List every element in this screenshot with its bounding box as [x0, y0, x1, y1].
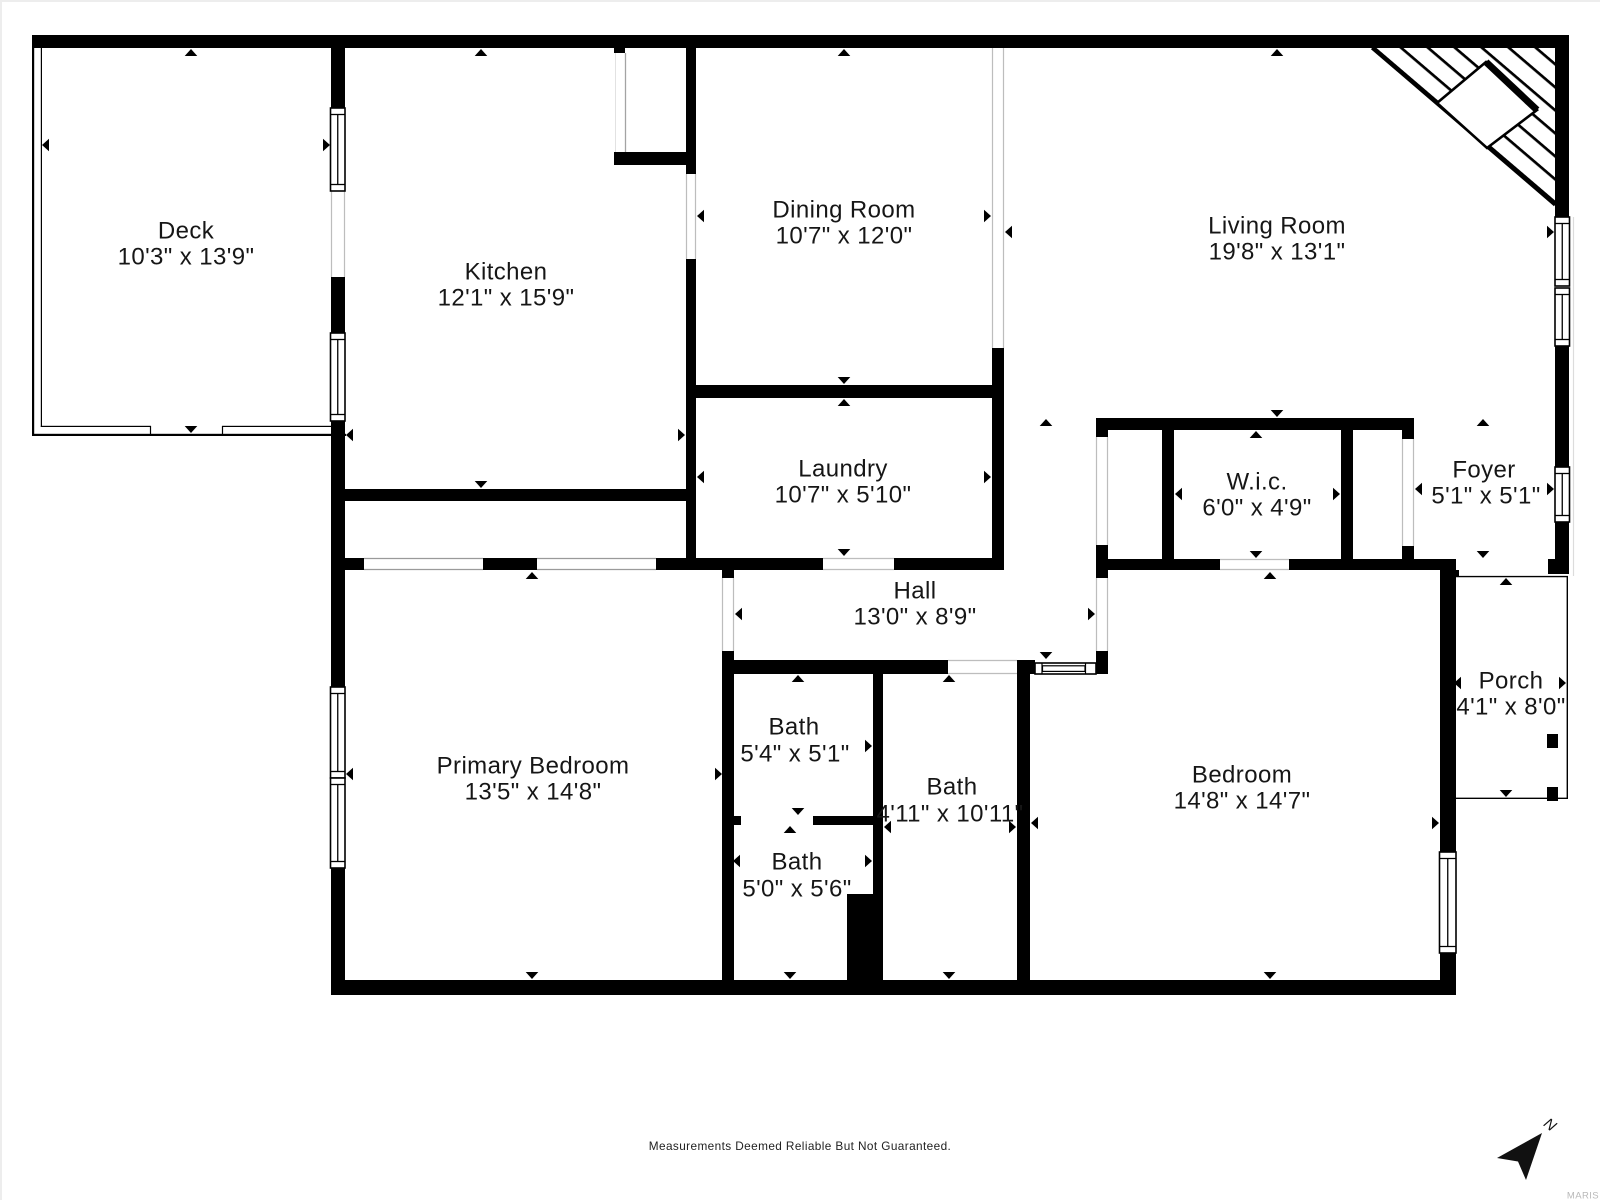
svg-text:13'0" x 8'9": 13'0" x 8'9" — [853, 604, 976, 631]
svg-text:Porch: Porch — [1479, 668, 1544, 695]
svg-text:10'3" x 13'9": 10'3" x 13'9" — [118, 244, 255, 271]
svg-text:5'1" x 5'1": 5'1" x 5'1" — [1431, 483, 1540, 510]
svg-text:14'8" x 14'7": 14'8" x 14'7" — [1174, 788, 1311, 815]
svg-text:Bath: Bath — [769, 714, 820, 741]
svg-text:4'11" x 10'11": 4'11" x 10'11" — [876, 801, 1023, 828]
svg-text:Living Room: Living Room — [1208, 213, 1346, 240]
svg-text:Dining Room: Dining Room — [772, 197, 915, 224]
svg-text:W.i.c.: W.i.c. — [1226, 469, 1287, 496]
svg-text:5'4" x 5'1": 5'4" x 5'1" — [740, 741, 849, 768]
svg-text:Primary Bedroom: Primary Bedroom — [437, 753, 630, 780]
svg-text:Foyer: Foyer — [1452, 457, 1515, 484]
svg-text:10'7" x 5'10": 10'7" x 5'10" — [775, 482, 912, 509]
svg-text:Bedroom: Bedroom — [1192, 762, 1292, 789]
svg-text:Deck: Deck — [158, 218, 215, 245]
svg-text:10'7" x 12'0": 10'7" x 12'0" — [776, 223, 913, 250]
svg-text:5'0" x 5'6": 5'0" x 5'6" — [742, 876, 851, 903]
svg-text:4'1" x 8'0": 4'1" x 8'0" — [1456, 694, 1565, 721]
svg-text:12'1" x 15'9": 12'1" x 15'9" — [438, 285, 575, 312]
svg-text:Kitchen: Kitchen — [465, 259, 548, 286]
svg-text:Bath: Bath — [772, 849, 823, 876]
svg-text:19'8" x 13'1": 19'8" x 13'1" — [1209, 239, 1346, 266]
svg-text:Measurements Deemed Reliable B: Measurements Deemed Reliable But Not Gua… — [649, 1139, 951, 1153]
svg-text:Laundry: Laundry — [798, 456, 888, 483]
svg-text:Bath: Bath — [927, 774, 978, 801]
svg-text:13'5" x 14'8": 13'5" x 14'8" — [465, 779, 602, 806]
svg-text:MARIS: MARIS — [1567, 1191, 1599, 1200]
svg-text:Hall: Hall — [894, 578, 937, 605]
svg-text:6'0" x 4'9": 6'0" x 4'9" — [1202, 495, 1311, 522]
